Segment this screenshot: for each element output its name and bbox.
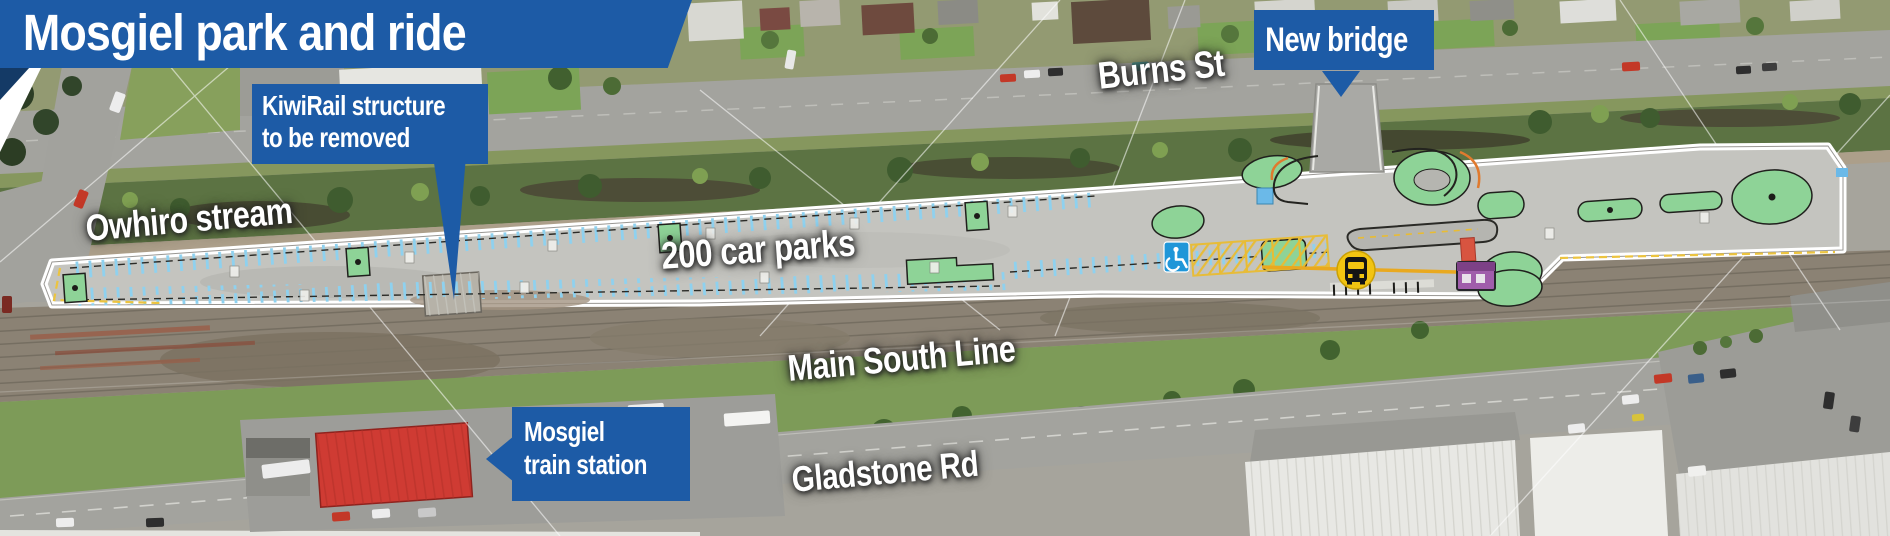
banner-fold: [0, 67, 30, 100]
page-title: Mosgiel park and ride: [0, 0, 466, 66]
kiwirail-callout-line2: to be removed: [262, 122, 443, 154]
new-bridge-callout-text: New bridge: [1254, 10, 1398, 70]
train-station-callout-line2: train station: [524, 448, 657, 481]
bus-stop-icon: [1337, 251, 1375, 289]
kiwirail-callout-line1: KiwiRail structure: [262, 90, 443, 122]
mosgiel-park-and-ride-infographic: Mosgiel park and ride KiwiRail structure…: [0, 0, 1890, 536]
title-banner: Mosgiel park and ride: [0, 0, 692, 68]
bus-shelter: [1457, 262, 1495, 290]
accessible-parking-icon: [1164, 242, 1189, 272]
train-station-building: [316, 423, 473, 507]
train-station-callout-line1: Mosgiel: [524, 415, 657, 448]
train-station-callout: Mosgiel train station: [512, 407, 690, 501]
kiwirail-callout: KiwiRail structure to be removed: [252, 84, 488, 164]
raised-crossing: [1460, 238, 1476, 262]
new-bridge-callout: New bridge: [1254, 10, 1434, 70]
